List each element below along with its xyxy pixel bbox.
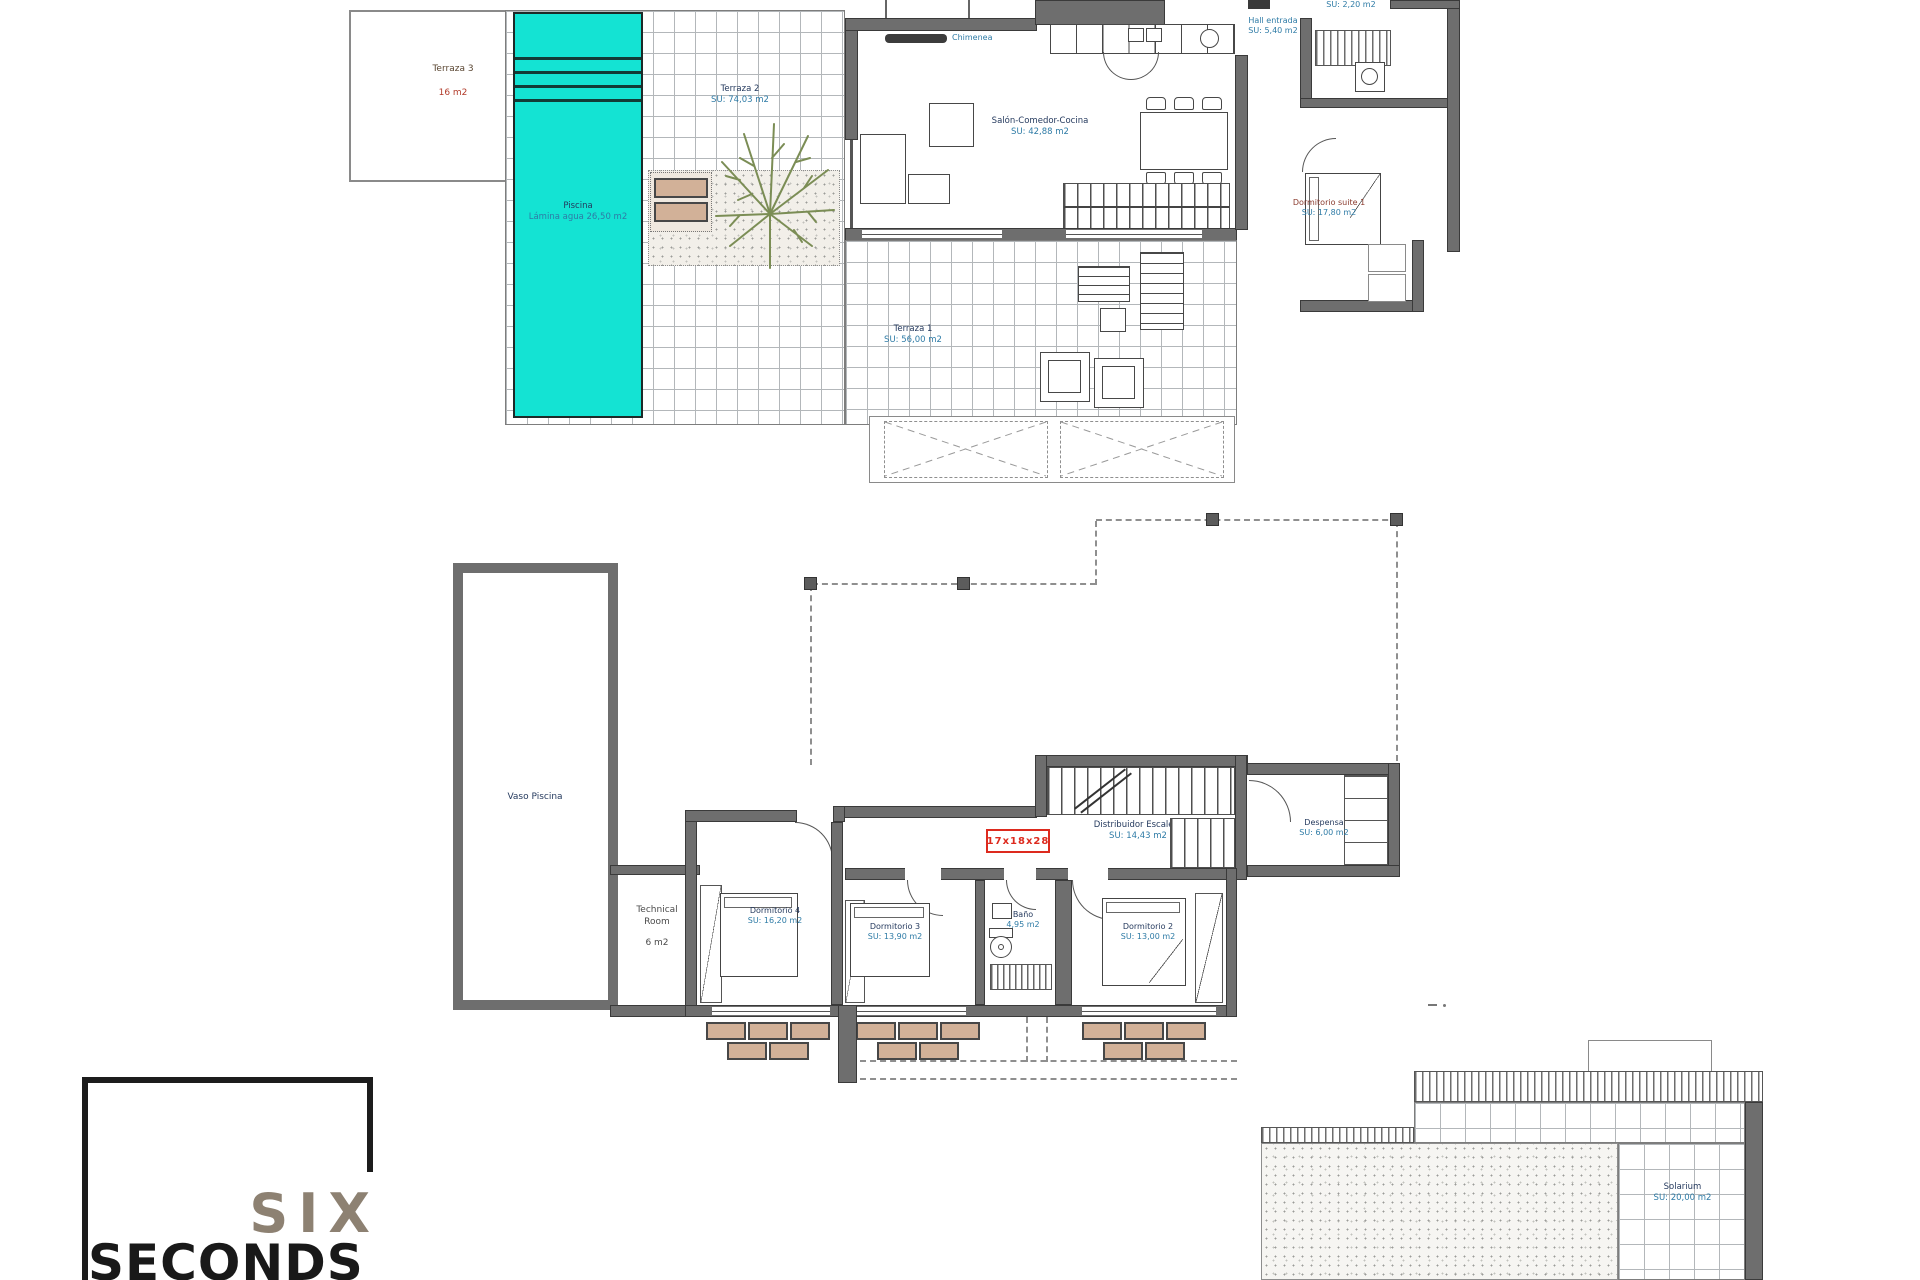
wall <box>1390 0 1460 9</box>
pergola-panel <box>1060 421 1224 478</box>
pool-label: Piscina Lámina agua 26,50 m2 <box>505 201 651 223</box>
wardrobe <box>1195 893 1223 1003</box>
pool-step <box>515 71 641 74</box>
planter-brick <box>706 1022 746 1040</box>
wall <box>845 868 1237 880</box>
upper-floor-dashed <box>1095 521 1097 585</box>
planter-brick <box>1082 1022 1122 1040</box>
wall <box>1300 98 1448 108</box>
door-arc <box>1131 52 1159 80</box>
upper-floor-dashed <box>812 583 1096 585</box>
planter-brick <box>940 1022 980 1040</box>
despensa-label: Despensa SU: 6,00 m2 <box>1284 818 1364 839</box>
chair <box>1202 97 1222 110</box>
door-gap <box>905 868 941 880</box>
planter-brick <box>919 1042 959 1060</box>
dorm3-label: Dormitorio 3 SU: 13,90 m2 <box>850 922 940 943</box>
planter-brick <box>790 1022 830 1040</box>
vaso-piscina-outline <box>453 563 618 1010</box>
survey-mark <box>1428 1004 1437 1006</box>
floor-plan-sheet: Terraza 3 16 m2 Piscina Lámina agua 26,5… <box>0 0 1920 1280</box>
sun-lounger <box>1140 252 1184 330</box>
door-arc <box>795 822 833 860</box>
wall <box>1300 18 1312 102</box>
wall <box>1388 763 1400 877</box>
wall <box>1745 1102 1763 1280</box>
shower <box>990 964 1052 990</box>
terraza1-label: Terraza 1 SU: 56,00 m2 <box>858 324 968 346</box>
dining-table <box>1140 112 1228 170</box>
projection-dashed <box>860 1060 1237 1062</box>
logo-seconds: SECONDS <box>88 1234 398 1280</box>
window <box>712 1007 830 1015</box>
wall <box>831 822 843 1005</box>
planter-brick <box>1103 1042 1143 1060</box>
sun-lounger <box>1078 266 1130 302</box>
kitchen-sink-icon <box>1146 28 1162 42</box>
kitchen-sink-icon <box>1128 28 1144 42</box>
sliding-window <box>1066 230 1202 238</box>
planter-brick <box>856 1022 896 1040</box>
wall <box>1035 755 1248 767</box>
logo-frame-right <box>367 1077 373 1172</box>
sofa <box>908 174 950 204</box>
staircase-lower-flight <box>1170 818 1235 868</box>
window <box>1082 1007 1216 1015</box>
planter-brick <box>748 1022 788 1040</box>
hall-label: Hall entrada SU: 5,40 m2 <box>1238 16 1308 37</box>
bed-fold <box>1149 939 1183 983</box>
chimenea-label: Chimenea <box>952 33 1032 43</box>
wall <box>685 810 797 822</box>
wall <box>845 18 858 140</box>
chair-inner <box>1048 360 1081 393</box>
planter-brick <box>877 1042 917 1060</box>
pool-step <box>515 85 641 88</box>
planter-brick <box>727 1042 767 1060</box>
fireplace-icon <box>885 34 947 43</box>
dorm2-label: Dormitorio 2 SU: 13,00 m2 <box>1103 922 1193 943</box>
wall <box>833 806 1037 818</box>
cabinet-dark <box>1248 0 1270 9</box>
pillow <box>1106 902 1180 913</box>
solarium-tiles <box>1618 1143 1745 1280</box>
tree-icon <box>700 118 840 270</box>
upper-floor-dashed <box>1396 521 1398 761</box>
vaso-piscina-label: Vaso Piscina <box>460 792 610 804</box>
chair-inner <box>1102 366 1135 399</box>
toilet-drain <box>998 944 1004 950</box>
wall <box>1235 755 1247 880</box>
wall <box>833 806 845 822</box>
sofa <box>860 134 906 204</box>
wall <box>1247 865 1400 877</box>
pillow <box>854 907 924 918</box>
wardrobe <box>1315 30 1391 66</box>
upper-floor-dashed <box>1096 519 1398 521</box>
pergola-x <box>1061 422 1225 479</box>
column <box>1206 513 1219 526</box>
wall <box>685 810 697 1017</box>
planter-brick <box>1145 1042 1185 1060</box>
wardrobe <box>700 885 722 1003</box>
column <box>804 577 817 590</box>
stair-dimension-stamp: 17x18x28 <box>986 829 1050 853</box>
washer-drum <box>1361 68 1378 85</box>
wall <box>1235 55 1248 230</box>
cooktop-icon <box>1200 29 1219 48</box>
wall <box>1447 0 1460 252</box>
partition-line <box>885 0 887 18</box>
lounge-chair <box>1094 358 1144 408</box>
window-glass <box>850 140 853 230</box>
wall <box>975 880 985 1005</box>
aseo-label: SU: 2,20 m2 <box>1316 0 1386 10</box>
stair-railing <box>1064 206 1229 208</box>
staircase <box>1063 183 1230 230</box>
planter-brick <box>769 1042 809 1060</box>
roof-upstand <box>1588 1040 1712 1072</box>
window <box>856 1007 966 1015</box>
chair <box>1146 97 1166 110</box>
washing-machine-icon <box>1355 62 1385 92</box>
balcony-planter <box>1368 274 1406 302</box>
sliding-window <box>862 230 1002 238</box>
projection-dashed <box>1046 1017 1048 1062</box>
coffee-table <box>929 103 974 147</box>
column <box>1390 513 1403 526</box>
wall <box>1035 0 1165 25</box>
toilet-bowl-icon <box>990 936 1012 958</box>
solarium-tiles <box>1414 1102 1745 1143</box>
door-gap <box>1068 868 1108 880</box>
partition-line <box>968 0 970 18</box>
balcony-planter <box>1368 244 1406 272</box>
bano-label: Baño 4,95 m2 <box>1000 910 1046 931</box>
side-table <box>1100 308 1126 332</box>
projection-dashed <box>860 1078 1237 1080</box>
solarium-label: Solarium SU: 20,00 m2 <box>1630 1182 1735 1204</box>
projection-dashed <box>1026 1017 1028 1062</box>
terraza2-label: Terraza 2 SU: 74,03 m2 <box>680 84 800 106</box>
door-arc <box>1249 780 1291 822</box>
pergola-panel <box>884 421 1048 478</box>
chair <box>1174 97 1194 110</box>
wall <box>1226 868 1237 1017</box>
suite-label: Dormitorio suite 1 SU: 17,80 m2 <box>1284 198 1374 219</box>
planter-brick <box>1124 1022 1164 1040</box>
pergola-x <box>885 422 1049 479</box>
gravel-roof <box>1261 1143 1618 1280</box>
pool-step <box>515 99 641 102</box>
pool-step <box>515 57 641 60</box>
survey-mark <box>1443 1004 1446 1007</box>
logo-frame-top <box>82 1077 373 1083</box>
roof-hatch-band <box>1414 1071 1763 1102</box>
planter-brick <box>1166 1022 1206 1040</box>
door-gap <box>1004 868 1036 880</box>
planter-brick <box>898 1022 938 1040</box>
wall <box>1412 240 1424 312</box>
wall <box>1247 763 1400 775</box>
column <box>957 577 970 590</box>
lounge-chair <box>1040 352 1090 402</box>
wall-stub <box>838 1005 857 1083</box>
door-arc <box>1302 138 1336 172</box>
wall <box>845 18 1037 31</box>
salon-label: Salón-Comedor-Cocina SU: 42,88 m2 <box>960 116 1120 138</box>
door-arc <box>1103 52 1131 80</box>
dorm4-label: Dormitorio 4 SU: 16,20 m2 <box>730 906 820 927</box>
wall <box>1035 755 1047 817</box>
roof-hatch-strip <box>1261 1127 1414 1143</box>
upper-floor-dashed <box>810 585 812 765</box>
wall <box>1055 880 1072 1005</box>
